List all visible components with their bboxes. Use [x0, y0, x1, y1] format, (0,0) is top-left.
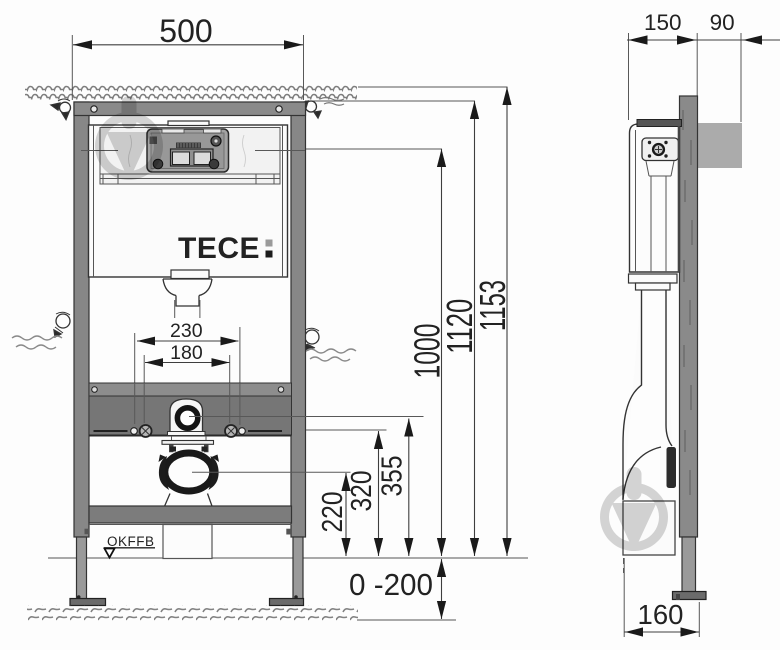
svg-text:320: 320: [346, 471, 378, 512]
svg-text:220: 220: [317, 492, 349, 533]
svg-text:150: 150: [644, 10, 682, 35]
svg-text:0 -200: 0 -200: [349, 567, 433, 602]
svg-text:90: 90: [710, 10, 735, 35]
svg-text:355: 355: [377, 456, 409, 497]
svg-text:160: 160: [638, 599, 684, 630]
svg-text:1153: 1153: [472, 280, 513, 331]
svg-text:TECE: TECE: [178, 232, 260, 265]
svg-text:180: 180: [170, 342, 203, 364]
svg-text:OKFFB: OKFFB: [107, 534, 155, 549]
svg-text:230: 230: [170, 320, 203, 342]
svg-text:500: 500: [159, 13, 212, 49]
